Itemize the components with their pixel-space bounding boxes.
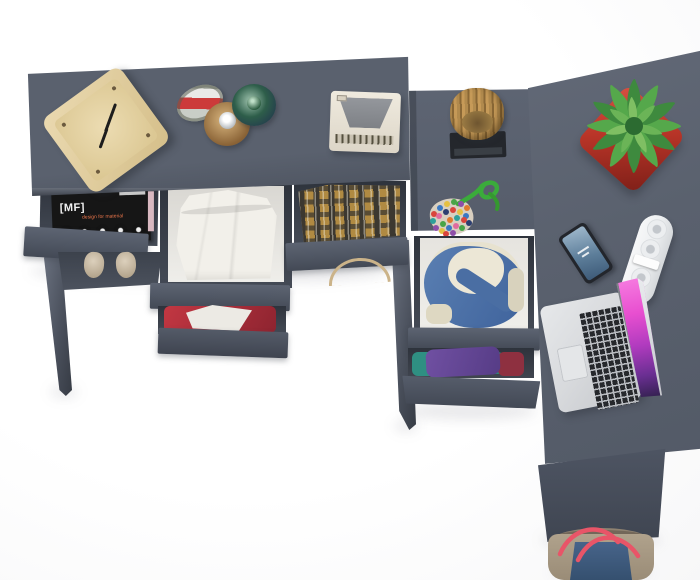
tote-bag (544, 512, 660, 580)
magazine-title: [MF] (60, 202, 86, 215)
clock-screw (111, 86, 117, 92)
radio-badge (337, 95, 347, 101)
plaid-shirt (298, 182, 402, 244)
tote-bag-straps (544, 512, 660, 580)
smartphone-screen (561, 225, 610, 281)
perfume-bottle-green (232, 84, 276, 126)
lining-corner (426, 304, 452, 324)
purple-clothes (425, 346, 500, 378)
clock-screw (95, 169, 101, 175)
driftwood-log (450, 88, 504, 140)
retro-radio (329, 91, 401, 153)
clock-screw (61, 122, 67, 128)
drawer-lower-front (158, 328, 289, 359)
clock-hour-hand (98, 128, 108, 149)
clock-screw (145, 132, 151, 138)
folded-white-pants (172, 190, 280, 282)
maroon-clothes (498, 352, 524, 376)
shoe-shelf (58, 252, 162, 290)
radio-panel (338, 97, 393, 129)
product-render-scene: [MF] design for material (0, 0, 700, 580)
plant-leaves (576, 74, 698, 186)
folded-shirt-beside (508, 268, 524, 312)
bead-pouch (420, 168, 512, 240)
denim-jacket (424, 240, 526, 330)
column-drawer-lower-front (402, 375, 541, 409)
laptop-trackpad (557, 344, 589, 382)
radio-speaker-slots (335, 134, 393, 145)
screen-text-line (582, 252, 590, 258)
laptop (537, 277, 668, 418)
potted-plant (576, 74, 698, 186)
magazine-subtitle: design for material (82, 213, 123, 220)
